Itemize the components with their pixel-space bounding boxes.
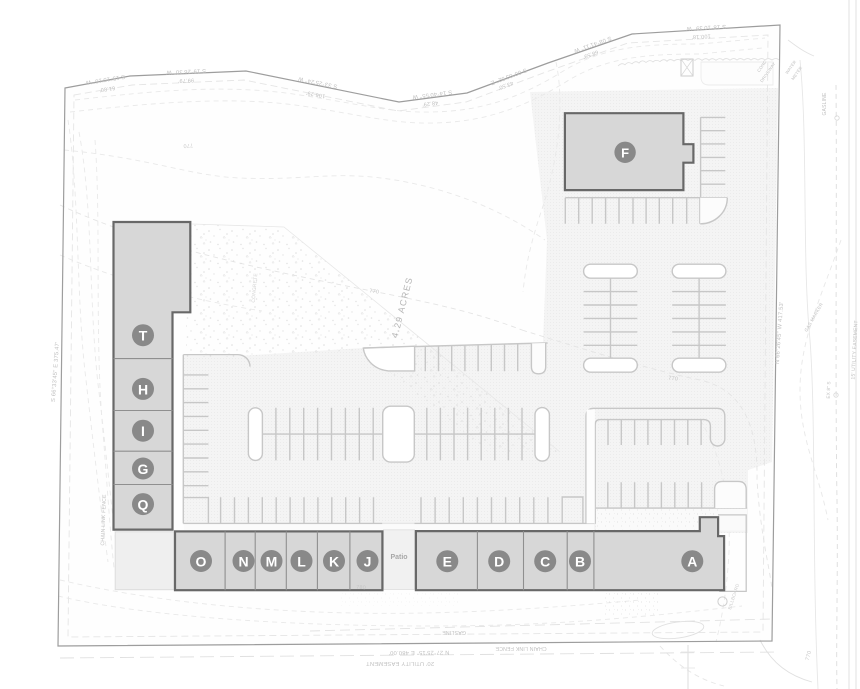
svg-text:15' UTILITY EASEMENT: 15' UTILITY EASEMENT <box>850 320 859 380</box>
svg-text:GAS MARKER: GAS MARKER <box>803 301 824 332</box>
svg-text:EX 8" S: EX 8" S <box>826 381 832 399</box>
svg-text:770: 770 <box>805 650 813 661</box>
svg-text:G: G <box>138 461 149 477</box>
svg-text:S 66°33'45" E 375.47': S 66°33'45" E 375.47' <box>51 342 61 403</box>
svg-text:L: L <box>297 554 306 570</box>
svg-text:Patio: Patio <box>390 554 407 561</box>
svg-text:S 19°26'30" W: S 19°26'30" W <box>166 67 207 75</box>
svg-text:C: C <box>540 554 550 570</box>
svg-text:20' UTILITY EASEMENT: 20' UTILITY EASEMENT <box>366 660 434 666</box>
svg-text:100.18': 100.18' <box>691 32 711 39</box>
svg-text:B: B <box>575 554 585 570</box>
svg-text:J: J <box>364 554 372 570</box>
svg-text:E: E <box>443 554 452 570</box>
svg-text:S 18°10'39" W: S 18°10'39" W <box>686 23 727 31</box>
svg-text:D: D <box>494 554 504 570</box>
svg-text:F: F <box>621 145 629 160</box>
svg-text:K: K <box>329 554 339 570</box>
svg-text:780: 780 <box>356 585 366 592</box>
svg-text:GASLINE: GASLINE <box>822 92 828 116</box>
svg-text:GASLINE: GASLINE <box>442 629 466 635</box>
svg-text:Q: Q <box>138 497 149 513</box>
svg-text:N 27°25'15" E 480.00': N 27°25'15" E 480.00' <box>389 649 450 655</box>
svg-text:99.79': 99.79' <box>178 77 194 84</box>
svg-text:O: O <box>196 554 207 570</box>
svg-text:A: A <box>687 554 697 570</box>
svg-text:H: H <box>138 381 148 397</box>
svg-text:T: T <box>139 328 148 344</box>
svg-text:M: M <box>266 554 278 570</box>
svg-text:N: N <box>238 554 248 570</box>
svg-text:770: 770 <box>183 141 193 148</box>
svg-text:CHAIN LINK FENCE: CHAIN LINK FENCE <box>495 645 547 651</box>
svg-text:I: I <box>141 423 145 439</box>
